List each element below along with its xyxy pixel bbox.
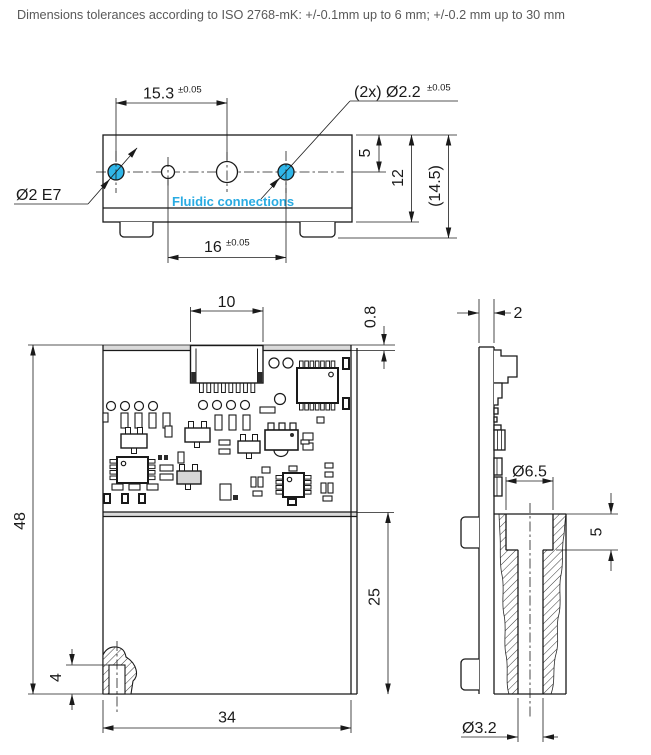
pcb-padf: [233, 495, 238, 500]
pcb-pad: [135, 413, 142, 428]
pcb-pad: [219, 449, 230, 454]
pcb-via: [107, 402, 116, 411]
bore-callout-label: Ø2 E7: [16, 187, 61, 204]
pcb-pad: [160, 465, 173, 471]
pcb-pad: [129, 484, 140, 490]
pcb-pad: [325, 463, 333, 468]
pcb-pad: [165, 426, 172, 437]
fluidic-connections-label: Fluidic connections: [172, 194, 294, 209]
pcb-pad: [229, 415, 236, 430]
pcb-pad: [220, 484, 231, 500]
pcb-pad: [328, 483, 333, 493]
pcb-padd: [122, 494, 128, 503]
pcb-via: [149, 402, 158, 411]
side-view: 2 Ø6.5 5 Ø3.2: [457, 299, 618, 742]
pcb-pad: [121, 413, 128, 428]
pcb-sot: [238, 435, 260, 459]
pcb-pad: [303, 433, 313, 440]
pcb-via: [283, 358, 293, 368]
pcb-connector: [191, 346, 264, 393]
pcb-power: [265, 423, 298, 457]
foot-right: [300, 222, 335, 237]
pcb-via: [199, 401, 208, 410]
connector-profile: [494, 350, 517, 383]
pcb-sot: [121, 428, 147, 454]
dim-15-3-label: 15.3: [143, 86, 174, 103]
foot-left: [120, 222, 153, 237]
dim-34-label: 34: [218, 710, 236, 727]
top-view-body: [103, 135, 352, 237]
pcb-pad: [301, 440, 309, 444]
dim-16-label: 16: [204, 239, 222, 256]
pcb-sot: [185, 422, 210, 448]
holes-callout-label: (2x) Ø2.2: [354, 84, 421, 101]
pcb-pad: [251, 477, 256, 487]
pcb-pad: [243, 415, 250, 430]
top-view: 15.3 ±0.05 (2x) Ø2.2 ±0.05 Ø2 E7 Fluidic…: [14, 83, 458, 264]
pcb-via: [227, 401, 236, 410]
pcb-chip_lr: [276, 473, 311, 497]
pcb-padd: [343, 398, 349, 409]
pcb-via: [241, 401, 250, 410]
pcb-pad: [289, 466, 297, 471]
dim-25-label: 25: [367, 588, 384, 606]
pcb-padf: [164, 455, 168, 460]
pcb-pad: [325, 472, 333, 477]
pcb-pad: [103, 413, 108, 422]
engineering-drawing: 15.3 ±0.05 (2x) Ø2.2 ±0.05 Ø2 E7 Fluidic…: [0, 0, 651, 755]
pcb-pad: [178, 452, 184, 463]
foot-bottom: [461, 659, 479, 690]
pcb-padd: [343, 358, 349, 369]
pcb-chip_tb: [297, 361, 338, 410]
pcb-pad: [219, 440, 230, 445]
pcb-pad: [258, 477, 263, 487]
port-boss: [103, 641, 137, 713]
pcb-pad: [260, 407, 275, 413]
dim-0-8-label: 0.8: [363, 306, 380, 328]
drawing-page: Dimensions tolerances according to ISO 2…: [0, 0, 651, 755]
pcb-pad: [149, 413, 156, 428]
pcb-via: [275, 394, 286, 405]
pcb-pad: [317, 417, 324, 423]
dim-16-tol: ±0.05: [226, 238, 250, 249]
pcb-sotg: [177, 465, 201, 490]
pcb-chip_lr: [110, 457, 155, 483]
pcb-pad: [112, 484, 123, 490]
dim-48-label: 48: [12, 512, 29, 530]
dim-14-5-label: (14.5): [427, 165, 444, 207]
pcb-pad: [215, 415, 222, 430]
counterbore: [506, 514, 553, 550]
pcb-pad: [160, 474, 173, 480]
front-view: 10 0.8 48 25 34: [12, 294, 395, 733]
pcb-padd: [288, 499, 296, 505]
foot-top: [461, 517, 479, 548]
pcb-via: [269, 358, 279, 368]
pcb-padd: [139, 494, 145, 503]
mid-edge-band: [103, 512, 357, 517]
dim-counterbore-depth-label: 5: [589, 527, 606, 536]
pcb-via: [135, 402, 144, 411]
pcb-padd: [104, 494, 110, 503]
pcb-pad: [262, 467, 270, 473]
pcb-via: [213, 401, 222, 410]
counterbore-label: Ø6.5: [512, 464, 547, 481]
pcb-components: [103, 346, 349, 506]
pcb-via: [121, 402, 130, 411]
front-view-outline: [28, 345, 395, 694]
dim-12-label: 12: [390, 169, 407, 187]
holes-callout-tol: ±0.05: [427, 83, 451, 94]
pcb-pad: [147, 484, 158, 490]
pcb-pad: [253, 491, 262, 496]
dim-5-label: 5: [357, 148, 374, 157]
dim-15-3-tol: ±0.05: [178, 85, 202, 96]
dim-2-label: 2: [514, 305, 523, 322]
pcb-pad: [321, 483, 326, 493]
bore: [518, 550, 543, 694]
dim-4-label: 4: [48, 673, 65, 682]
dim-10-label: 10: [218, 294, 236, 311]
bore-label: Ø3.2: [462, 720, 497, 737]
pcb-padf: [158, 455, 162, 460]
pcb-pad: [323, 496, 332, 501]
side-view-block: [461, 503, 566, 717]
